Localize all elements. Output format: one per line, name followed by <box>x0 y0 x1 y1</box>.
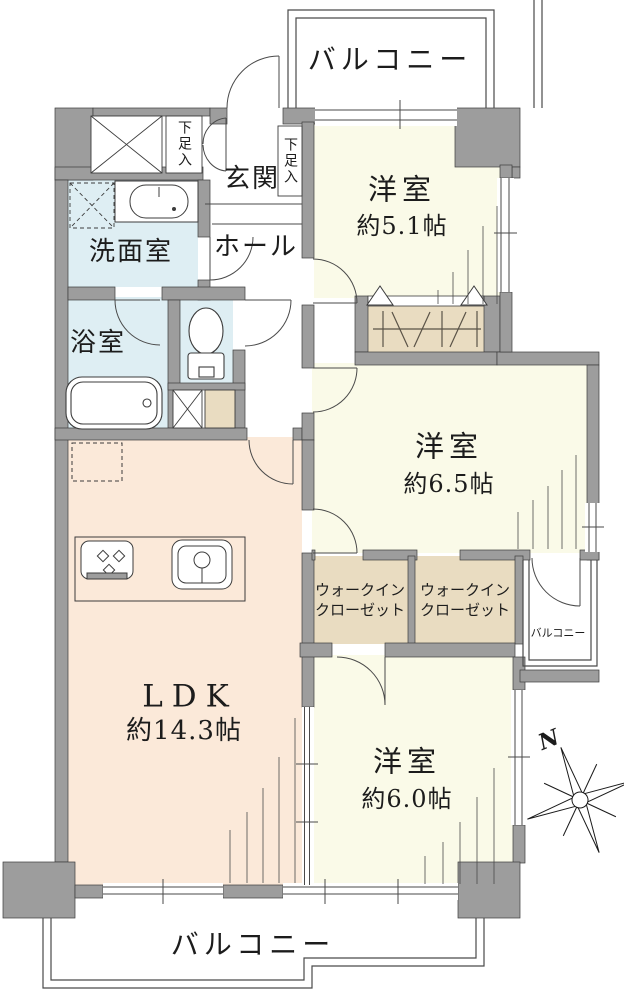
wic1-line1: ウォークイン <box>315 581 405 599</box>
genkan-label: 玄関 <box>224 166 280 192</box>
bedroom2-size: 約6.5帖 <box>403 472 494 496</box>
balcony-side-label: バルコニー <box>531 628 586 639</box>
wic2-label: ウォークイン クローゼット <box>420 580 510 621</box>
shoe-cabinet-left-label: 下足入 <box>177 120 191 168</box>
wic2-line1: ウォークイン <box>420 581 510 599</box>
washroom-label: 洗面室 <box>89 239 173 265</box>
genkan-step-lines <box>205 204 302 224</box>
balcony-side-door <box>532 558 580 606</box>
kitchen-counter <box>75 537 245 601</box>
toilet <box>188 308 224 379</box>
entrance-door <box>227 56 279 108</box>
ldk-label: LDK <box>142 682 238 713</box>
floor-plan: バルコニー 洋室 約5.1帖 玄関 下足入 下足入 ホール 洗面室 浴室 洋室 … <box>0 0 624 1000</box>
hall-label: ホール <box>214 234 298 260</box>
bathtub <box>66 377 162 429</box>
ldk-size: 約14.3帖 <box>126 718 242 744</box>
bathroom-label: 浴室 <box>70 330 126 356</box>
hall-storage <box>205 390 235 428</box>
balcony-side-outline <box>523 560 597 666</box>
meter-box <box>91 116 162 173</box>
wic1-label: ウォークイン クローゼット <box>315 580 405 621</box>
wic2-line2: クローゼット <box>420 601 510 619</box>
balcony-side-inner-outline <box>529 560 591 660</box>
balcony-bottom-label: バルコニー <box>171 931 335 959</box>
bedroom1-label: 洋室 <box>368 176 436 205</box>
bedroom1-size: 約5.1帖 <box>356 214 447 238</box>
wic1-line2: クローゼット <box>315 601 405 619</box>
ldk-floor <box>68 437 302 885</box>
balcony-top-label: バルコニー <box>308 46 472 74</box>
kitchen-sink <box>172 540 232 589</box>
closet-floor <box>368 304 484 352</box>
shoe-cabinet-right-label: 下足入 <box>283 137 297 185</box>
shoe-cabinet-bifold-doors <box>203 118 226 171</box>
bedroom3-label: 洋室 <box>373 748 441 777</box>
bedroom3-size: 約6.0帖 <box>361 787 452 811</box>
floor-plan-drawing <box>0 0 624 1000</box>
vanity-sink <box>115 181 198 222</box>
stove <box>81 541 133 579</box>
toilet-door <box>245 300 291 346</box>
bedroom2-label: 洋室 <box>415 433 483 462</box>
pipe-space-box <box>173 390 202 428</box>
